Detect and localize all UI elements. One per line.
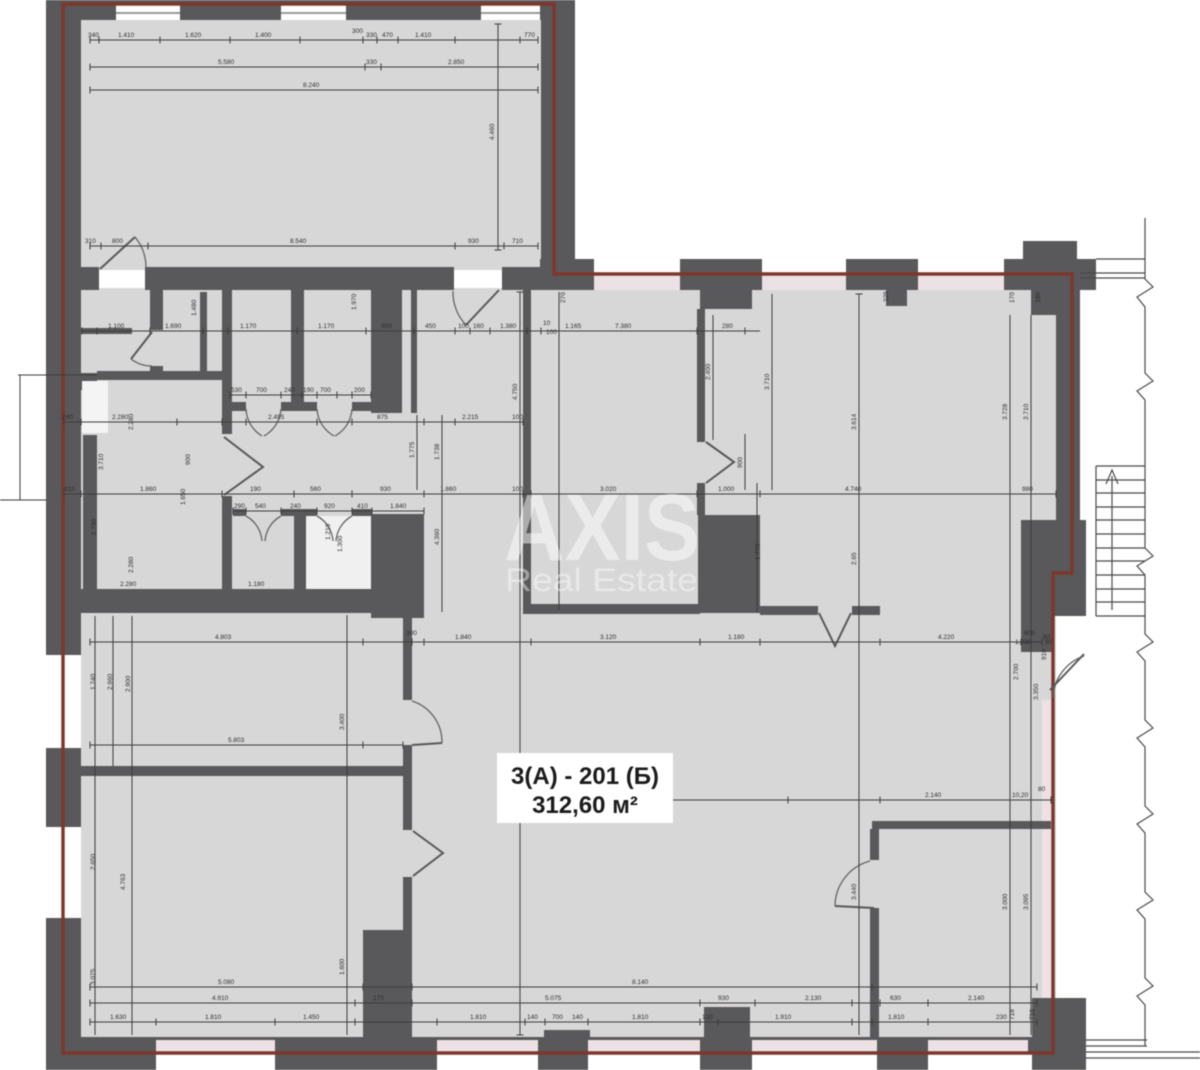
svg-text:900: 900	[381, 323, 392, 330]
svg-text:1.300: 1.300	[337, 535, 344, 552]
svg-text:3.120: 3.120	[600, 634, 617, 641]
svg-text:130: 130	[702, 1014, 713, 1021]
svg-text:1.600: 1.600	[339, 958, 346, 975]
svg-text:1.180: 1.180	[248, 581, 265, 588]
svg-text:1.170: 1.170	[318, 323, 335, 330]
svg-text:160: 160	[473, 323, 484, 330]
svg-text:200: 200	[354, 387, 365, 394]
svg-text:4.460: 4.460	[489, 123, 496, 140]
svg-text:280: 280	[722, 323, 733, 330]
svg-text:100: 100	[546, 329, 557, 336]
svg-text:470: 470	[382, 32, 393, 39]
svg-text:5.080: 5.080	[218, 979, 235, 986]
svg-text:1.810: 1.810	[632, 1014, 649, 1021]
svg-text:10,20: 10,20	[1012, 792, 1029, 799]
svg-text:3.000: 3.000	[1002, 893, 1009, 910]
svg-text:1.100: 1.100	[108, 323, 125, 330]
svg-text:700: 700	[256, 387, 267, 394]
svg-text:330: 330	[366, 59, 377, 66]
svg-text:2.900: 2.900	[125, 675, 132, 692]
svg-text:Real Estate: Real Estate	[505, 562, 698, 598]
svg-text:1.630: 1.630	[110, 1014, 127, 1021]
svg-text:340: 340	[88, 32, 99, 39]
svg-text:910: 910	[1041, 649, 1048, 660]
svg-text:800: 800	[112, 238, 123, 245]
svg-text:3(А) - 201 (Б): 3(А) - 201 (Б)	[511, 763, 659, 790]
svg-text:1.770: 1.770	[755, 543, 762, 560]
svg-text:100: 100	[458, 323, 469, 330]
svg-text:1.180: 1.180	[728, 634, 745, 641]
svg-text:1.000: 1.000	[718, 486, 735, 493]
svg-text:240: 240	[62, 414, 73, 421]
svg-text:140: 140	[527, 1014, 538, 1021]
svg-text:1.165: 1.165	[565, 323, 582, 330]
svg-text:2.280: 2.280	[128, 556, 135, 573]
svg-text:300: 300	[352, 28, 363, 35]
svg-text:450: 450	[425, 323, 436, 330]
svg-text:2.140: 2.140	[968, 995, 985, 1002]
svg-text:225: 225	[883, 291, 890, 302]
svg-text:1.480: 1.480	[191, 299, 198, 316]
svg-text:3.710: 3.710	[764, 373, 771, 390]
svg-text:875: 875	[377, 414, 388, 421]
svg-text:1.030: 1.030	[1015, 639, 1032, 646]
svg-text:170: 170	[1009, 292, 1016, 303]
svg-text:1.380: 1.380	[500, 323, 517, 330]
svg-text:4.360: 4.360	[434, 528, 441, 545]
svg-text:930: 930	[468, 238, 479, 245]
svg-text:930: 930	[380, 486, 391, 493]
svg-text:770: 770	[524, 32, 535, 39]
svg-text:560: 560	[310, 486, 321, 493]
svg-text:100: 100	[512, 414, 523, 421]
svg-text:2.130: 2.130	[805, 995, 822, 1002]
svg-text:1.970: 1.970	[351, 293, 358, 310]
svg-text:1.910: 1.910	[775, 1014, 792, 1021]
svg-text:2.700: 2.700	[1013, 663, 1020, 680]
svg-text:600: 600	[1024, 630, 1035, 637]
svg-text:1.740: 1.740	[90, 673, 97, 690]
svg-text:2.400: 2.400	[705, 363, 712, 380]
svg-text:540: 540	[255, 503, 266, 510]
svg-text:2.140: 2.140	[925, 792, 942, 799]
svg-text:80: 80	[1038, 786, 1046, 793]
svg-text:530: 530	[231, 387, 242, 394]
svg-text:1.410: 1.410	[118, 32, 135, 39]
svg-text:980: 980	[1022, 486, 1033, 493]
svg-text:1.738: 1.738	[434, 443, 441, 460]
svg-text:2.280: 2.280	[112, 414, 129, 421]
svg-text:630: 630	[890, 995, 901, 1002]
svg-text:1.450: 1.450	[303, 1014, 320, 1021]
svg-text:1.620: 1.620	[185, 32, 202, 39]
svg-text:310: 310	[85, 238, 96, 245]
svg-text:170: 170	[373, 995, 384, 1002]
svg-text:5.803: 5.803	[228, 737, 245, 744]
svg-text:180: 180	[1035, 292, 1042, 303]
svg-text:4.910: 4.910	[212, 995, 229, 1002]
svg-text:7.380: 7.380	[615, 323, 632, 330]
svg-text:2.215: 2.215	[462, 414, 479, 421]
svg-text:930: 930	[718, 995, 729, 1002]
svg-text:716: 716	[1029, 1009, 1036, 1020]
svg-text:2.960: 2.960	[107, 673, 114, 690]
svg-text:1.840: 1.840	[390, 503, 407, 510]
svg-text:4.763: 4.763	[120, 873, 127, 890]
svg-text:8.140: 8.140	[632, 979, 649, 986]
svg-text:1.210: 1.210	[325, 523, 332, 540]
svg-text:4.803: 4.803	[215, 634, 232, 641]
svg-text:140: 140	[572, 1014, 583, 1021]
svg-text:3.710: 3.710	[98, 453, 105, 470]
svg-text:1.650: 1.650	[180, 488, 187, 505]
svg-text:920: 920	[324, 503, 335, 510]
svg-text:3.095: 3.095	[1023, 893, 1030, 910]
svg-text:312,60 м²: 312,60 м²	[532, 792, 638, 819]
svg-text:4.750: 4.750	[512, 383, 519, 400]
svg-text:3.728: 3.728	[1002, 403, 1009, 420]
svg-text:900: 900	[737, 457, 744, 468]
svg-text:4.220: 4.220	[938, 634, 955, 641]
svg-text:8.240: 8.240	[303, 82, 320, 89]
svg-text:5.075: 5.075	[545, 995, 562, 1002]
svg-text:3.075: 3.075	[90, 968, 97, 985]
svg-text:2.850: 2.850	[448, 59, 465, 66]
svg-text:1.810: 1.810	[205, 1014, 222, 1021]
svg-text:2.650: 2.650	[90, 853, 97, 870]
svg-text:3.614: 3.614	[851, 413, 858, 430]
svg-text:410: 410	[357, 503, 368, 510]
svg-text:1.810: 1.810	[888, 1014, 905, 1021]
svg-text:1.410: 1.410	[415, 32, 432, 39]
svg-text:700: 700	[552, 1014, 563, 1021]
svg-text:330: 330	[366, 32, 377, 39]
svg-text:1.690: 1.690	[165, 323, 182, 330]
svg-text:700: 700	[320, 387, 331, 394]
svg-text:8.540: 8.540	[290, 238, 307, 245]
svg-text:3.710: 3.710	[1023, 403, 1030, 420]
svg-text:3.400: 3.400	[339, 713, 346, 730]
svg-text:900: 900	[185, 454, 192, 465]
svg-text:718: 718	[1009, 1009, 1016, 1020]
svg-text:300: 300	[406, 630, 417, 637]
svg-text:2.730: 2.730	[91, 518, 98, 535]
svg-text:290: 290	[234, 503, 245, 510]
svg-text:1.400: 1.400	[255, 32, 272, 39]
svg-text:410: 410	[64, 486, 75, 493]
svg-text:240: 240	[290, 503, 301, 510]
svg-text:5.580: 5.580	[218, 59, 235, 66]
svg-text:710: 710	[512, 238, 523, 245]
svg-text:240: 240	[284, 387, 295, 394]
svg-text:1.810: 1.810	[470, 1014, 487, 1021]
svg-text:1.170: 1.170	[240, 323, 257, 330]
svg-text:2.495: 2.495	[268, 414, 285, 421]
svg-text:2.280: 2.280	[120, 581, 137, 588]
svg-text:1.860: 1.860	[140, 486, 157, 493]
svg-text:80: 80	[1045, 639, 1053, 646]
svg-text:2.65: 2.65	[851, 552, 858, 565]
svg-text:1.775: 1.775	[409, 441, 416, 458]
svg-text:3.440: 3.440	[851, 883, 858, 900]
svg-text:270: 270	[560, 292, 567, 303]
svg-text:190: 190	[250, 486, 261, 493]
svg-text:10: 10	[543, 320, 551, 327]
svg-text:3.350: 3.350	[1033, 683, 1040, 700]
svg-text:230: 230	[996, 1014, 1007, 1021]
svg-text:190: 190	[303, 387, 314, 394]
svg-text:1.840: 1.840	[455, 634, 472, 641]
svg-text:2.280: 2.280	[128, 413, 135, 430]
